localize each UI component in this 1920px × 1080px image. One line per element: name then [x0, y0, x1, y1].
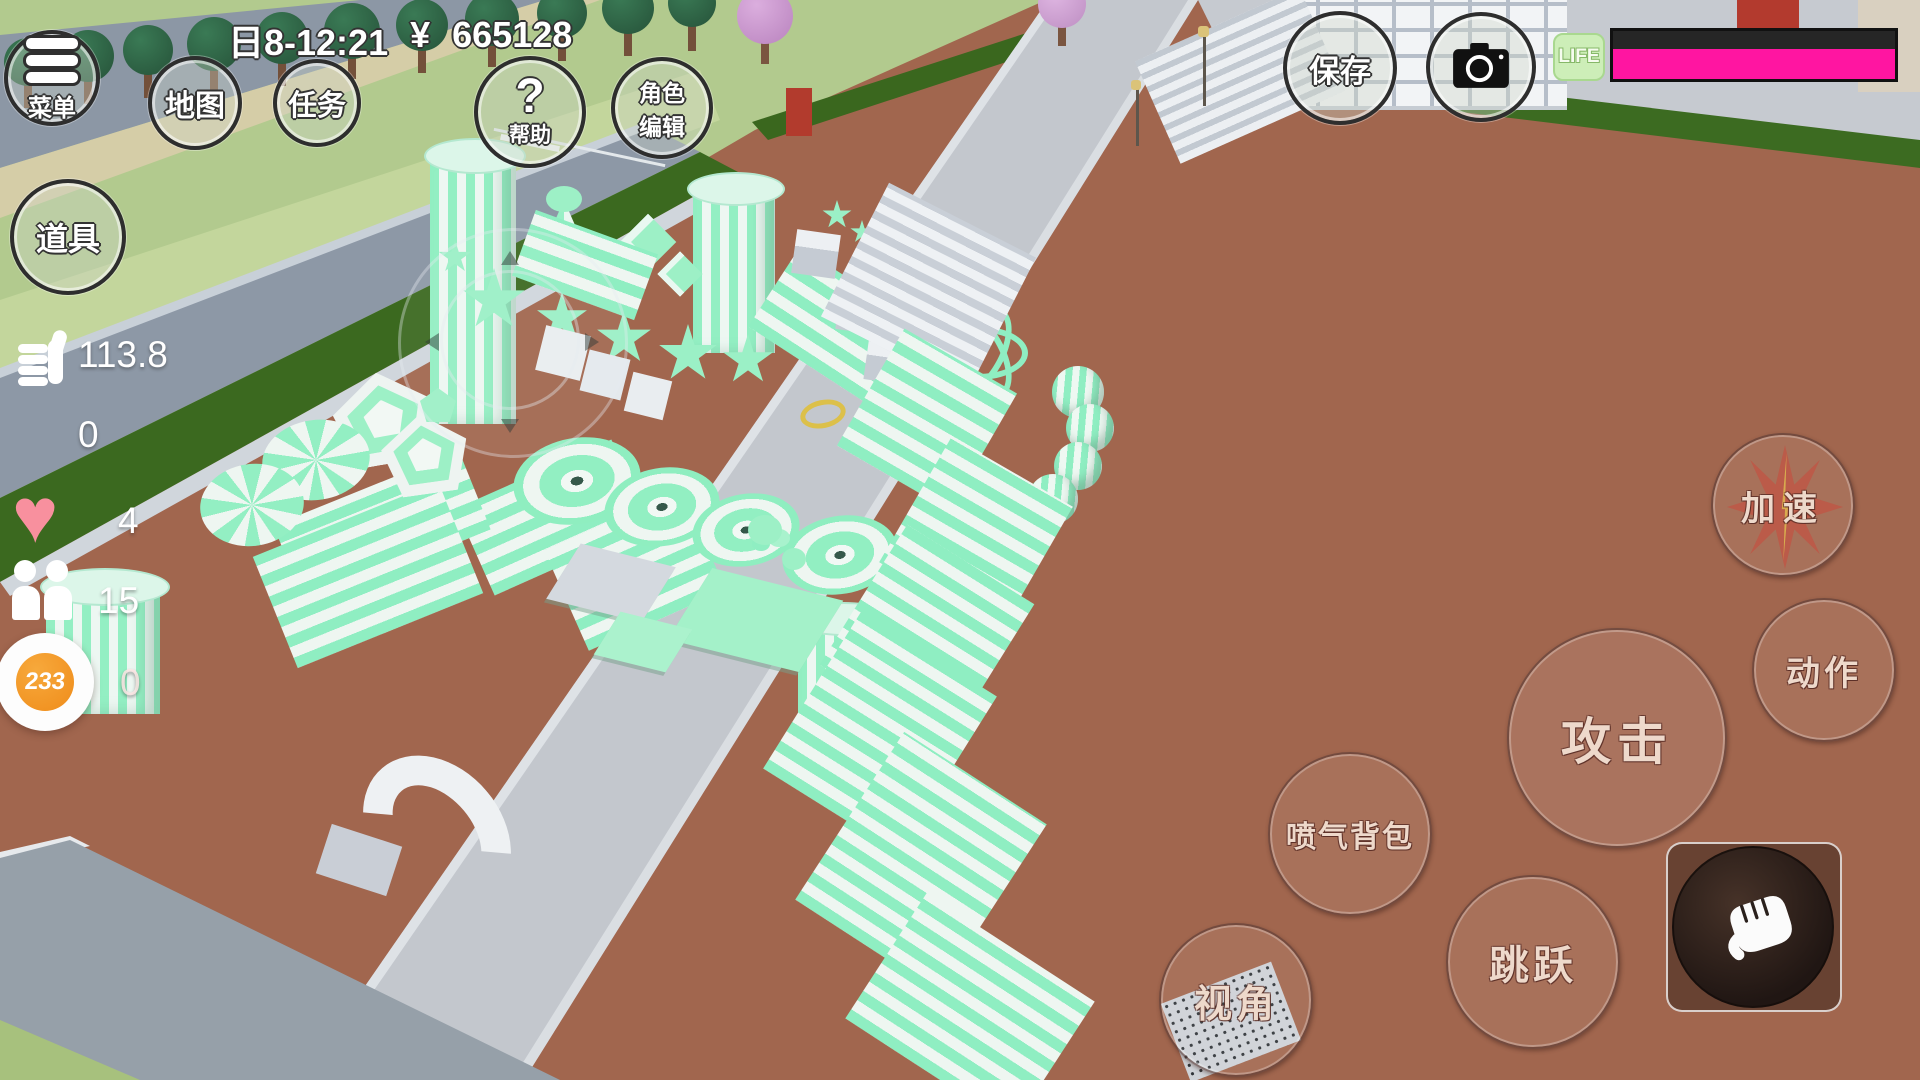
life-label: LIFE	[1558, 46, 1599, 68]
life-bar-fill	[1613, 49, 1895, 79]
jump-label: 跳跃	[1489, 933, 1577, 991]
map-label: 地图	[165, 81, 225, 125]
props-label: 道具	[36, 214, 100, 260]
likes-icon	[18, 330, 72, 384]
attack-label: 攻击	[1561, 702, 1673, 774]
game-scene	[0, 0, 1920, 1080]
map-button[interactable]: 地图	[148, 56, 242, 150]
camera-icon	[1450, 41, 1512, 93]
lamp-head	[1131, 80, 1141, 90]
joystick-inner-ring	[440, 270, 580, 410]
hamburger-icon	[26, 38, 78, 83]
life-badge: LIFE	[1553, 33, 1605, 81]
jump-button[interactable]: 跳跃	[1446, 875, 1620, 1049]
help-label: 帮助	[509, 119, 551, 149]
props-button[interactable]: 道具	[10, 179, 126, 295]
white-tile	[624, 372, 672, 420]
jetpack-button[interactable]: 喷气背包	[1268, 752, 1432, 916]
life-bar	[1610, 28, 1898, 82]
people-icon	[12, 560, 78, 622]
badge-233[interactable]: 233	[0, 633, 94, 731]
money-amount: 665128	[452, 14, 572, 66]
character-edit-label-line1: 角色	[639, 74, 685, 108]
camera-button[interactable]	[1426, 12, 1536, 122]
menu-button[interactable]: 菜单	[4, 30, 100, 126]
view-button[interactable]: 视角	[1159, 923, 1313, 1077]
mint-palm	[822, 200, 852, 230]
character-edit-button[interactable]: 角色 编辑	[611, 57, 713, 159]
heart-icon: ♥	[12, 476, 58, 554]
lamp-head	[1198, 26, 1209, 37]
save-button[interactable]: 保存	[1283, 11, 1397, 125]
red-gate	[786, 88, 812, 136]
help-button[interactable]: ? 帮助	[474, 56, 586, 168]
mint-clover	[782, 548, 806, 570]
joystick-arrow-up-icon	[501, 251, 519, 265]
punch-button-circle	[1672, 846, 1834, 1008]
game-time: 日8-12:21	[228, 14, 388, 66]
mint-clover	[748, 515, 782, 545]
lamp-post	[1203, 34, 1206, 106]
task-button[interactable]: 任务	[273, 59, 361, 147]
counter-b-value: 0	[120, 662, 141, 704]
action-button[interactable]: 动作	[1752, 598, 1896, 742]
view-label: 视角	[1194, 973, 1278, 1028]
boost-label: 加速	[1741, 481, 1825, 530]
currency-symbol: ¥	[410, 14, 430, 66]
joystick-arrow-down-icon	[501, 419, 519, 433]
mint-cone-top	[546, 186, 582, 212]
badge-233-inner: 233	[16, 653, 74, 711]
gray-cube	[791, 229, 841, 279]
badge-233-label: 233	[23, 668, 66, 696]
likes-value: 113.8	[78, 334, 168, 376]
counter-a-value: 0	[78, 414, 99, 456]
movement-joystick[interactable]	[398, 228, 628, 458]
lamp-post	[1136, 88, 1139, 146]
joystick-arrow-right-icon	[585, 333, 599, 351]
attack-button[interactable]: 攻击	[1507, 628, 1727, 848]
action-label: 动作	[1786, 646, 1862, 695]
save-label: 保存	[1309, 46, 1371, 91]
status-bar: 日8-12:21 ¥ 665128	[228, 14, 572, 66]
task-label: 任务	[288, 82, 346, 124]
jetpack-label: 喷气背包	[1286, 812, 1414, 856]
fist-icon	[1698, 872, 1809, 983]
game-screen: 日8-12:21 ¥ 665128 菜单 地图 任务 ? 帮助 角色 编辑 道具…	[0, 0, 1920, 1080]
people-value: 15	[98, 580, 139, 622]
punch-button[interactable]	[1666, 842, 1842, 1012]
mint-tower-top	[687, 172, 785, 206]
tree-trunk	[688, 23, 696, 51]
menu-label: 菜单	[28, 88, 76, 123]
boost-button[interactable]: 加速	[1711, 433, 1855, 577]
hearts-value: 4	[118, 500, 139, 542]
question-mark-icon: ?	[515, 75, 544, 119]
joystick-arrow-left-icon	[425, 333, 439, 351]
character-edit-label-line2: 编辑	[639, 108, 685, 142]
